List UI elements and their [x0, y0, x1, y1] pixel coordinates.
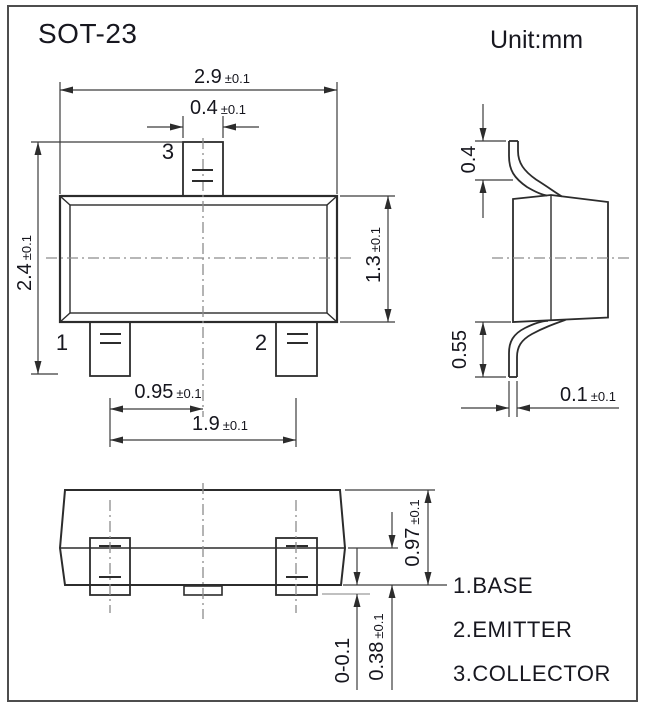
dim-front-lead: 0.38±0.1	[366, 587, 388, 707]
page-title: SOT-23	[38, 18, 137, 50]
pin-legend: 1.BASE 2.EMITTER 3.COLLECTOR	[453, 573, 611, 705]
dim-side-lead-top: 0.4	[458, 98, 480, 218]
pin-2-callout: 2	[246, 330, 276, 356]
dim-top-height: 2.4±0.1	[14, 203, 36, 323]
dim-lead-span: 1.9±0.1	[160, 413, 280, 435]
dim-front-standoff: 0-0.1	[332, 599, 354, 715]
upper-lead-side-view	[509, 141, 562, 197]
legend-emitter: 2.EMITTER	[453, 617, 611, 643]
legend-collector: 3.COLLECTOR	[453, 661, 611, 687]
dim-top-width: 2.9±0.1	[162, 66, 282, 88]
dim-side-lead-foot: 0.55	[449, 288, 471, 408]
body-outline-top-view	[60, 196, 337, 322]
dim-front-height: 0.97±0.1	[402, 473, 424, 593]
legend-base: 1.BASE	[453, 573, 611, 599]
lead-1-top-view	[90, 322, 130, 376]
dim-lead3-width: 0.4±0.1	[158, 97, 278, 119]
side-view	[461, 104, 631, 417]
lower-lead-side-view	[509, 320, 566, 377]
dim-side-standoff: 0.1±0.1	[528, 384, 645, 406]
drawing-canvas: SOT-23 Unit:mm 2.9±0.1 0.4±0.1 2.4±0.1 1…	[0, 0, 645, 715]
dim-lead-pitch: 0.95±0.1	[108, 381, 228, 403]
pin-1-callout: 1	[47, 330, 77, 356]
lead-2-top-view	[276, 322, 317, 376]
dim-body-height: 1.3±0.1	[363, 195, 385, 315]
unit-label: Unit:mm	[490, 26, 583, 55]
pin-3-callout: 3	[153, 139, 183, 165]
